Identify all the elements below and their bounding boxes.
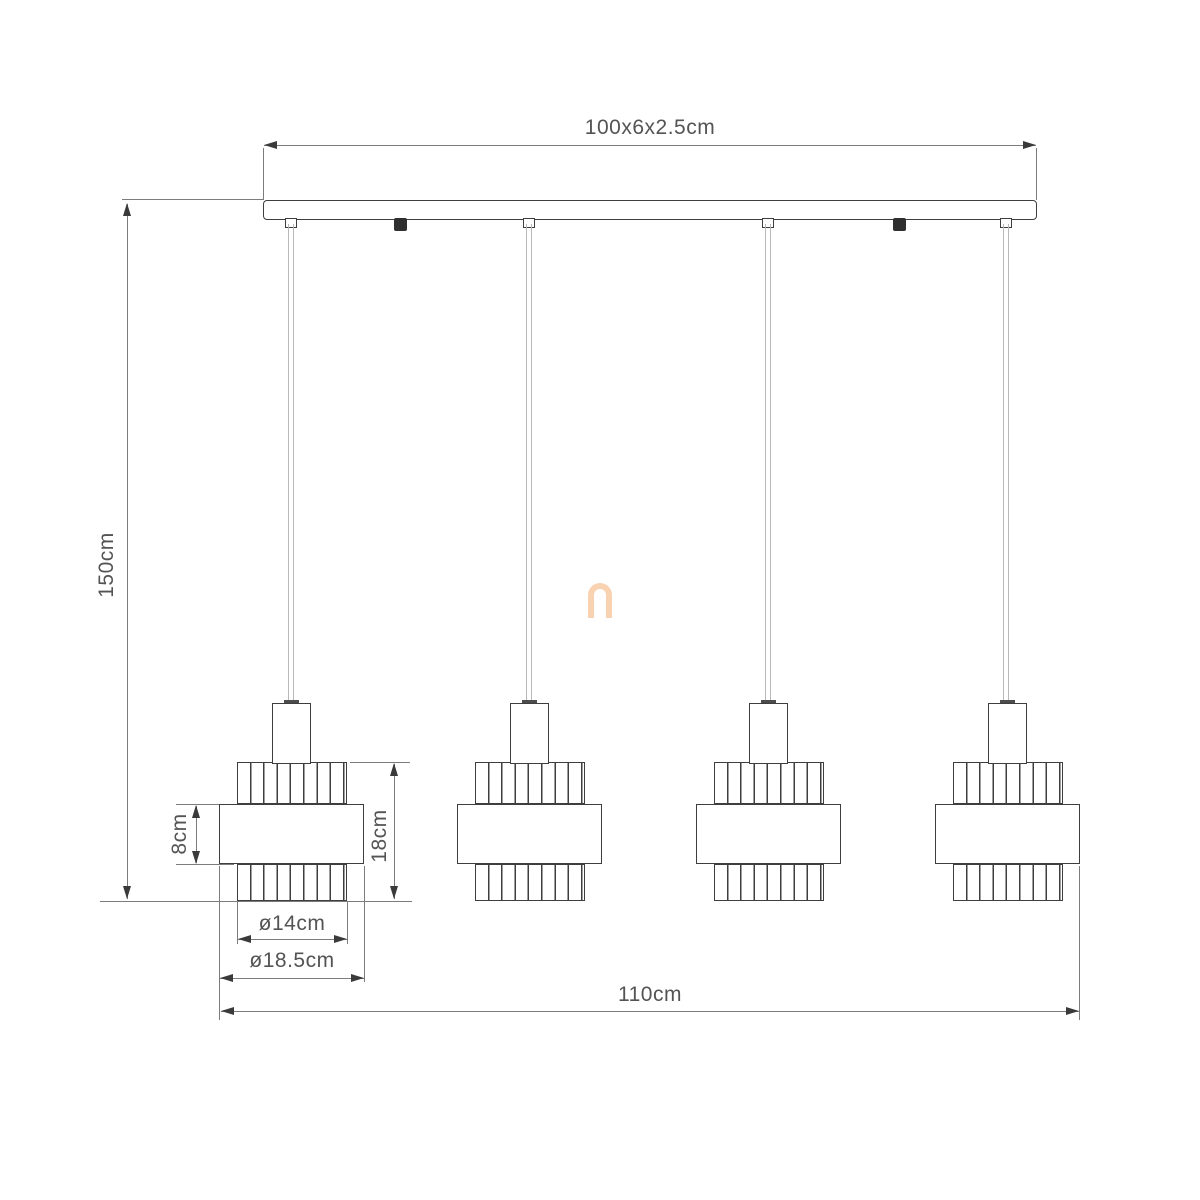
pendant-cord [526, 224, 532, 704]
lamp-shade [457, 700, 602, 901]
dimension-arrow [238, 935, 251, 943]
dimension-arrow [390, 886, 398, 899]
shade-band [219, 804, 364, 864]
dimension-arrow [192, 805, 200, 818]
lamp-socket [272, 703, 311, 764]
dimension-line [221, 1011, 1079, 1012]
lamp-shade [696, 700, 841, 901]
dimension-label-top-diameter: ø14cm [237, 912, 347, 936]
dimension-label-band-diameter: ø18.5cm [217, 949, 367, 973]
dimension-line [220, 978, 364, 979]
dimension-arrow [123, 203, 131, 216]
extension-line [1036, 148, 1037, 200]
dimension-arrow [351, 974, 364, 982]
shade-band [696, 804, 841, 864]
diagram-canvas: 100x6x2.5cm 150cm 8cm 18cm ø14cm ø18.5cm… [0, 0, 1200, 1200]
rail-screw-icon [893, 218, 906, 231]
dimension-arrow [390, 763, 398, 776]
dimension-label-overall-width: 110cm [560, 983, 740, 1007]
dimension-arrow [123, 886, 131, 899]
extension-line [347, 902, 348, 944]
dimension-label-canopy: 100x6x2.5cm [460, 116, 840, 140]
pendant-cord [1003, 224, 1009, 704]
lamp-socket [988, 703, 1027, 764]
shade-top-ribs [475, 762, 585, 804]
shade-bottom-ribs [953, 864, 1063, 901]
lamp-shade [219, 700, 364, 901]
shade-top-ribs [953, 762, 1063, 804]
extension-line [1079, 866, 1080, 1020]
dimension-label-drop: 150cm [95, 524, 119, 606]
shade-bottom-ribs [237, 864, 347, 901]
dimension-line [238, 939, 347, 940]
dimension-arrow [264, 141, 277, 149]
lamp-socket [749, 703, 788, 764]
extension-line [350, 762, 410, 763]
dimension-line [127, 204, 128, 899]
lamp-shade [935, 700, 1080, 901]
extension-line [100, 901, 412, 902]
dimension-arrow [1023, 141, 1036, 149]
ceiling-rail [263, 200, 1037, 220]
dimension-arrow [334, 935, 347, 943]
shade-bottom-ribs [475, 864, 585, 901]
dimension-arrow [1066, 1007, 1079, 1015]
extension-line [219, 866, 220, 1020]
dimension-label-band-height: 8cm [168, 802, 192, 866]
dimension-label-shade-height: 18cm [368, 798, 392, 874]
shade-bottom-ribs [714, 864, 824, 901]
shade-band [935, 804, 1080, 864]
dimension-arrow [192, 851, 200, 864]
rail-screw-icon [394, 218, 407, 231]
dimension-arrow [221, 1007, 234, 1015]
shade-top-ribs [714, 762, 824, 804]
dimension-line [394, 764, 395, 899]
extension-line [122, 199, 263, 200]
shade-band [457, 804, 602, 864]
dimension-line [264, 145, 1036, 146]
pendant-cord [765, 224, 771, 704]
extension-line [263, 148, 264, 200]
shade-top-ribs [237, 762, 347, 804]
dimension-arrow [220, 974, 233, 982]
lamp-socket [510, 703, 549, 764]
pendant-cord [288, 224, 294, 704]
watermark-arch [588, 583, 612, 618]
